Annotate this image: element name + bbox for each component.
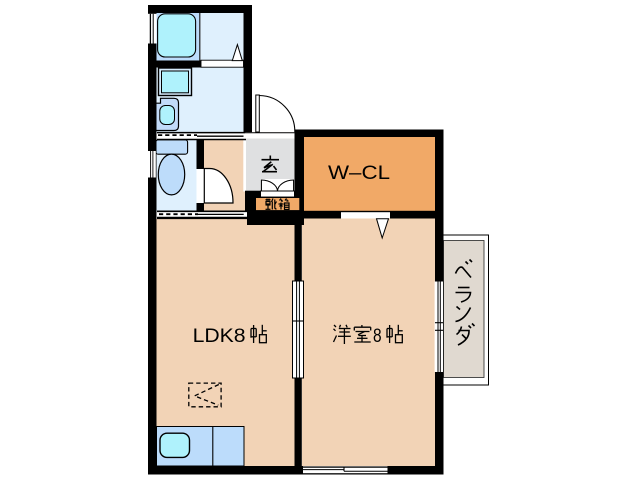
svg-text:W–CL: W–CL (328, 163, 390, 184)
svg-text:8: 8 (373, 325, 382, 347)
svg-text:LDK8: LDK8 (193, 325, 246, 347)
